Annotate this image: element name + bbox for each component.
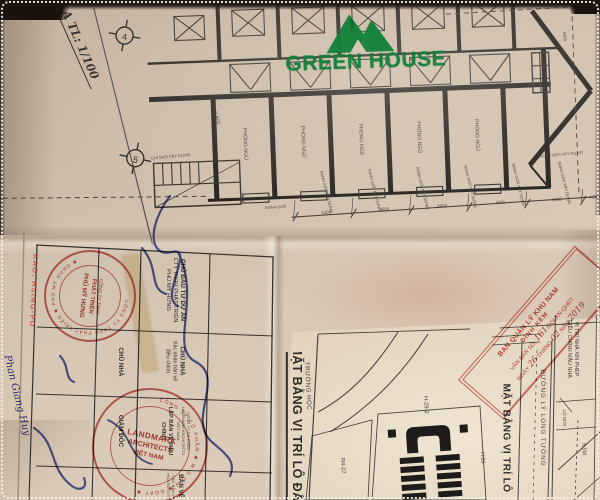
room-label: PHÒNG NGỦ xyxy=(299,126,307,158)
blue-ink-signatures xyxy=(0,180,300,500)
green-house-watermark: GREEN HOUSE xyxy=(279,5,451,77)
dimension-value: 4000 xyxy=(379,206,390,212)
boundary-label-vertical: RANH GIỚI XÂY DỰNG xyxy=(415,166,431,210)
dimension-value-right: 5000 xyxy=(562,31,568,42)
boundary-label-vertical: RANH GIỚI XÂY DỰNG xyxy=(463,165,479,209)
dimension-value: 4950 xyxy=(589,194,600,200)
grid-bubble-label-4: 4 xyxy=(121,32,127,43)
photographed-architectural-drawing: 4 5 xyxy=(0,0,600,500)
room-label: PHÒNG NGỦ xyxy=(241,128,249,160)
lot-label-h26: H-26 xyxy=(479,452,486,464)
dimension-value: 4100 xyxy=(321,209,332,215)
lo-gioi-label: LỘ GIỚI xyxy=(559,404,569,432)
road-width-label: 6,5M xyxy=(578,436,588,462)
room-label: PHÒNG NGỦ xyxy=(473,119,481,151)
dimension-value: 4000 xyxy=(437,203,448,209)
room-label: PHÒNG NGỦ xyxy=(415,121,423,153)
stair-boundary-label: CHỈ GIỚI XÂY DỰNG xyxy=(151,152,191,161)
boundary-label-vertical: RANH GIỚI XÂY DỰNG xyxy=(511,163,527,207)
boundary-label-vertical: RANH GIỚI XÂY DỰNG xyxy=(367,168,383,212)
dimension-value: 4000 xyxy=(495,200,506,206)
room-label: PHÒNG NGỦ xyxy=(357,123,365,155)
date-mid2: NĂM xyxy=(559,320,572,334)
lot-label-r4: R4-27 xyxy=(339,458,346,474)
dimension-value: 4000 xyxy=(552,196,563,202)
lot-label-h29: H-29-2 xyxy=(422,396,429,414)
grid-bubble-label-5: 5 xyxy=(132,154,139,165)
